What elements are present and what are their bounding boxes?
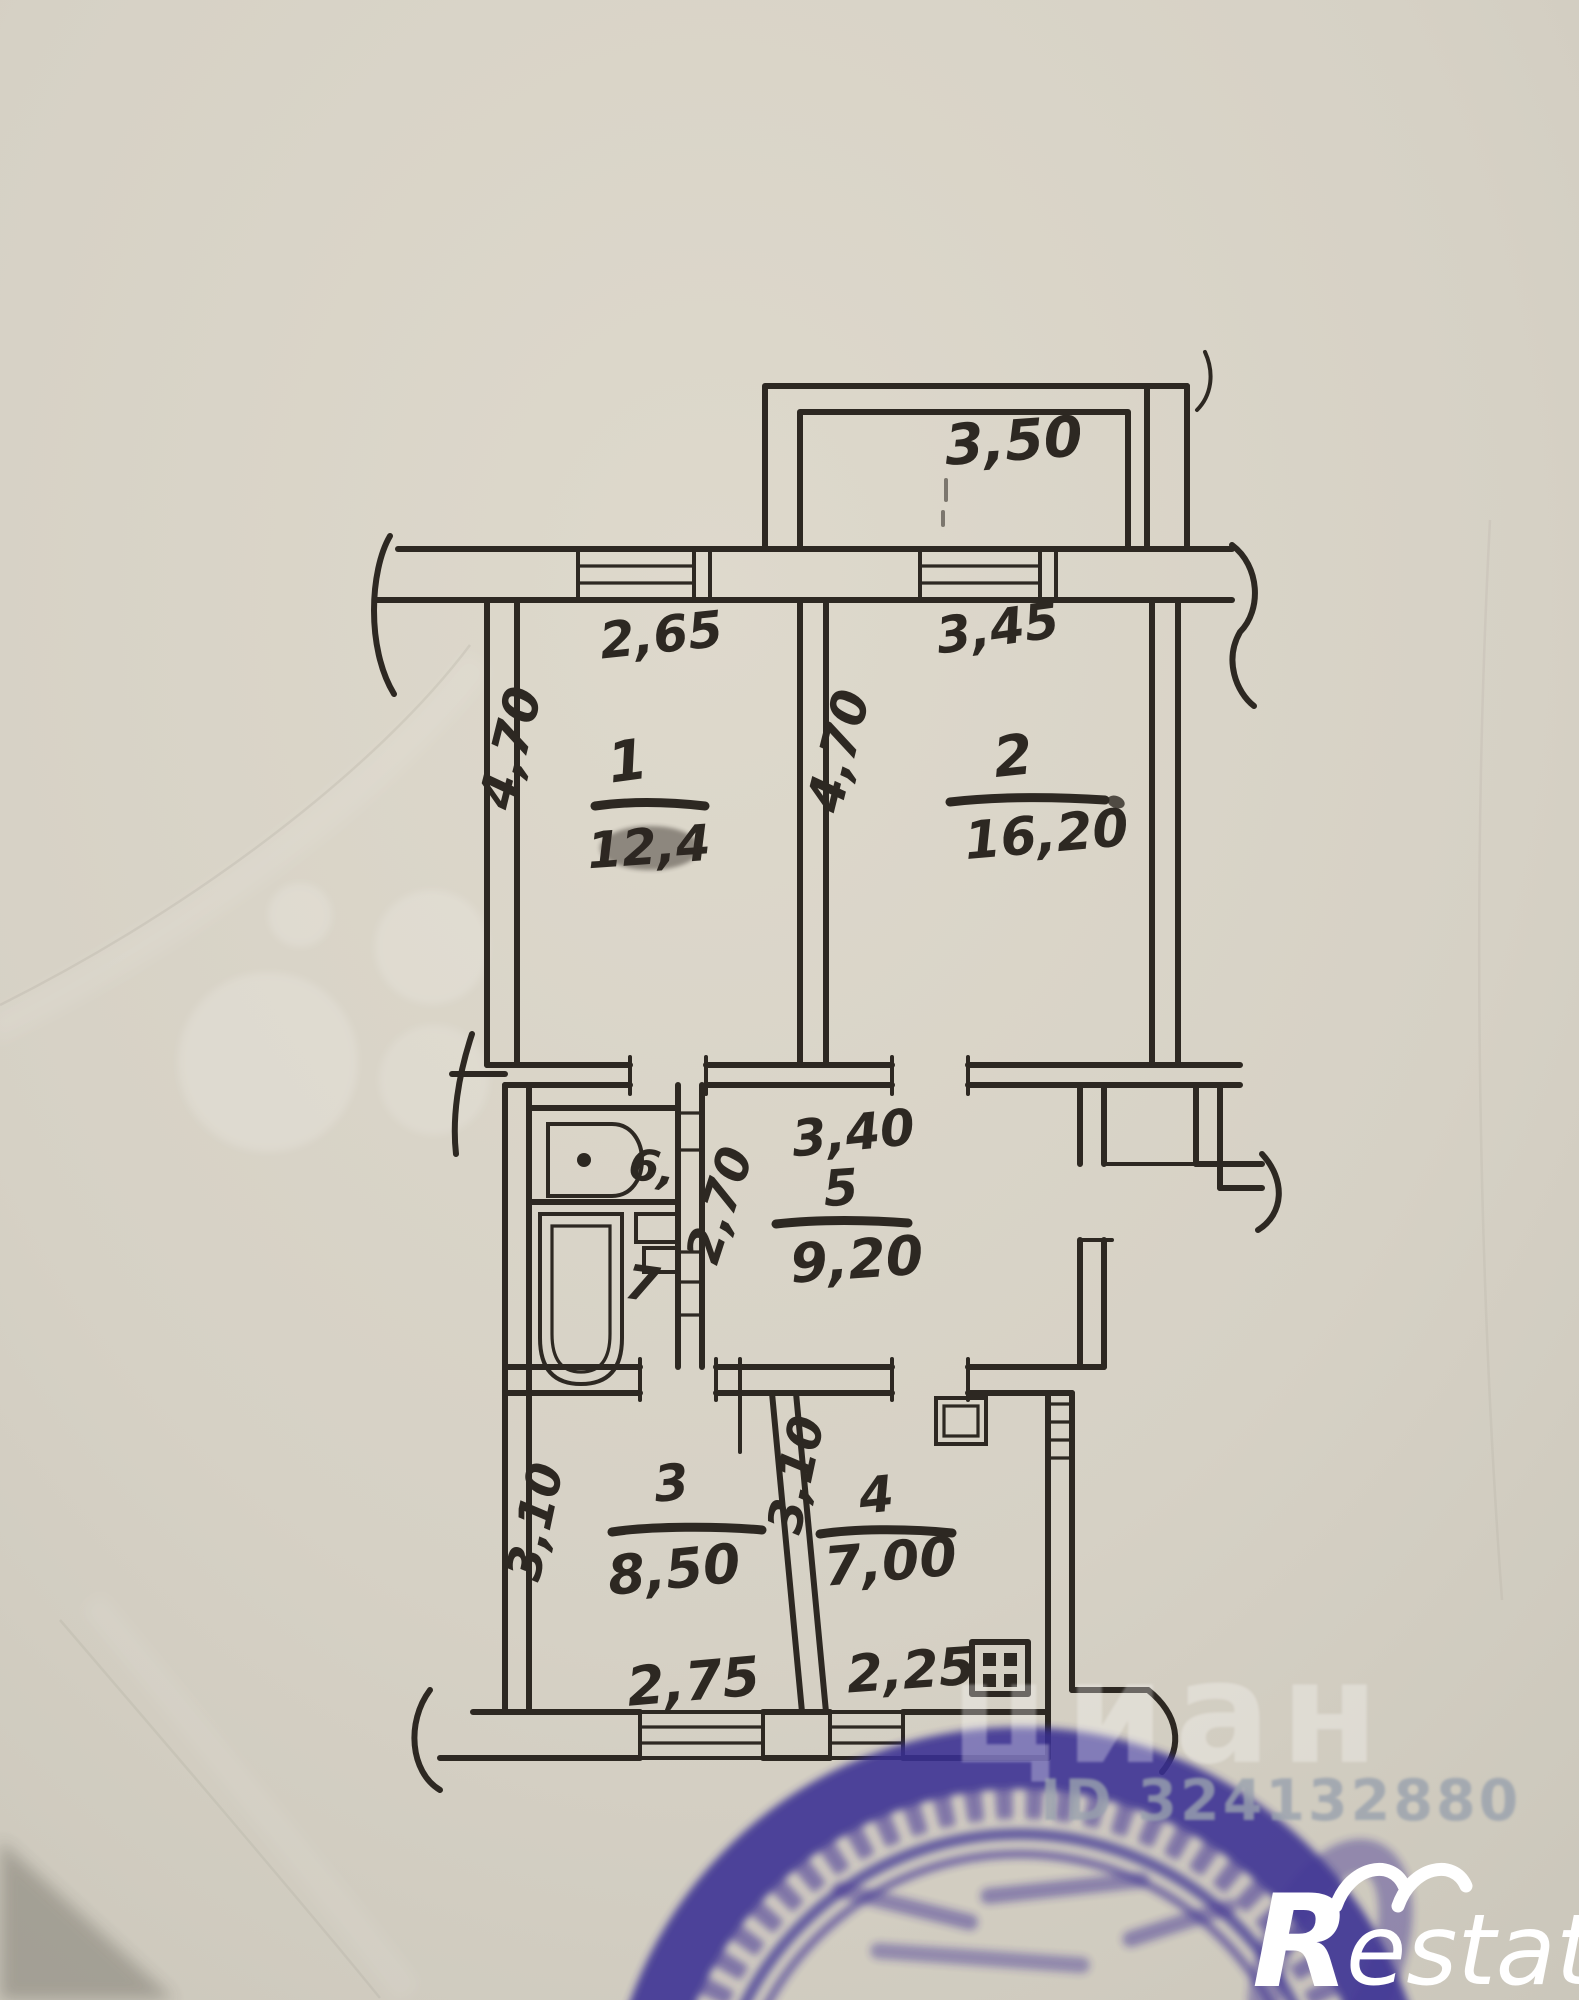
ink-smudge <box>600 826 700 870</box>
room-1-fraction-bar <box>595 803 705 806</box>
room-3-fraction-bar <box>612 1527 762 1532</box>
room-4-area: 7,00 <box>821 1524 959 1598</box>
listing-id-watermark: ID 324132880 <box>1040 1768 1521 1834</box>
restate-logo-initial: R <box>1252 1868 1351 2000</box>
room-3-width-dim: 2,75 <box>624 1644 762 1718</box>
restate-logo-text: estate <box>1346 1894 1579 2000</box>
balcony-dim-label: 3,50 <box>943 404 1085 478</box>
room-3-number: 3 <box>651 1452 692 1513</box>
room-2-number: 2 <box>990 722 1036 791</box>
floor-plan-photo: 3,50 2,65 4,70 1 12,4 3,45 4,70 2 16,20 … <box>0 0 1579 2000</box>
room-4-number: 4 <box>855 1464 897 1525</box>
room-5-fraction-bar <box>776 1221 908 1225</box>
room-5-area: 9,20 <box>788 1223 925 1295</box>
room-5-number: 5 <box>821 1158 860 1218</box>
floor-plan-drawing: 3,50 2,65 4,70 1 12,4 3,45 4,70 2 16,20 … <box>0 0 1579 2000</box>
room-6-number: 6, <box>625 1138 680 1196</box>
